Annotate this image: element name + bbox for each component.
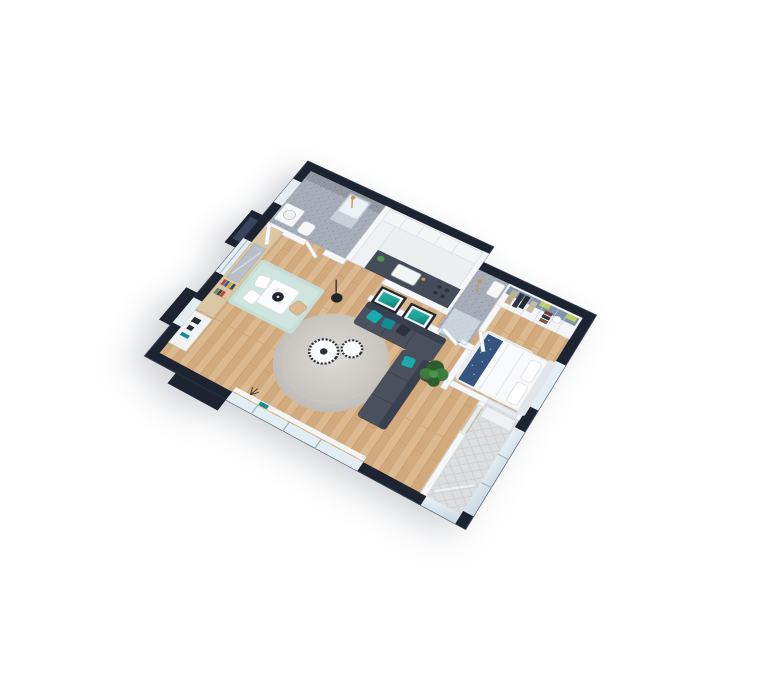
render-canvas: 3D isometric floor plan render of a one-…	[0, 0, 780, 700]
floor-plan-svg: 3D isometric floor plan render of a one-…	[123, 147, 626, 550]
floor-plan-scene: 3D isometric floor plan render of a one-…	[123, 147, 626, 550]
